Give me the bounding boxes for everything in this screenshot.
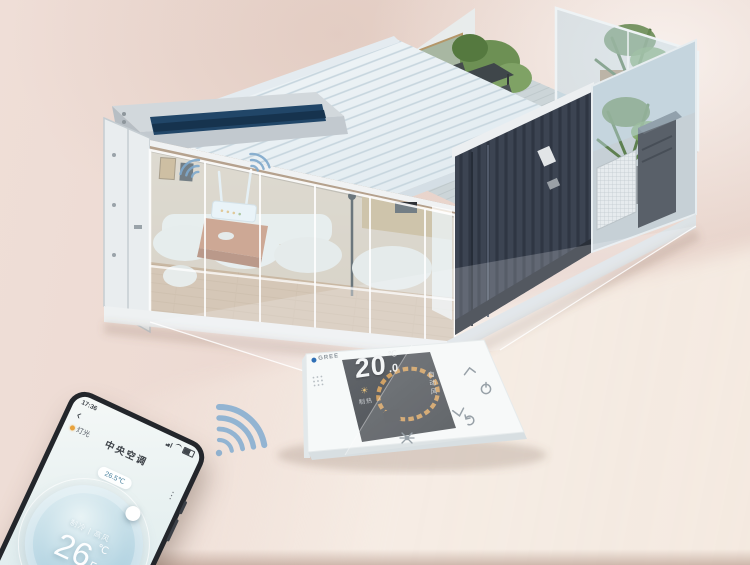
brand-logo-icon <box>311 357 317 363</box>
speaker-grille <box>312 375 323 386</box>
scene: GREE 20 ℃ .0 ☀ 制热 自动风 17:36 ‹ <box>0 0 750 565</box>
container-left-end <box>104 118 150 332</box>
thermostat-mode: ☀ 制热 <box>353 385 377 407</box>
set-temp-decimal: .0 <box>389 363 399 375</box>
phone-temp-unit: ℃ <box>95 544 109 558</box>
wifi-icon <box>173 443 182 452</box>
wifi-waves-phone <box>194 399 271 475</box>
set-temp-unit: ℃ <box>388 350 398 359</box>
back-button[interactable]: ‹ <box>74 407 84 422</box>
signal-icon <box>166 441 173 448</box>
set-temp-value: 20 <box>354 352 388 383</box>
